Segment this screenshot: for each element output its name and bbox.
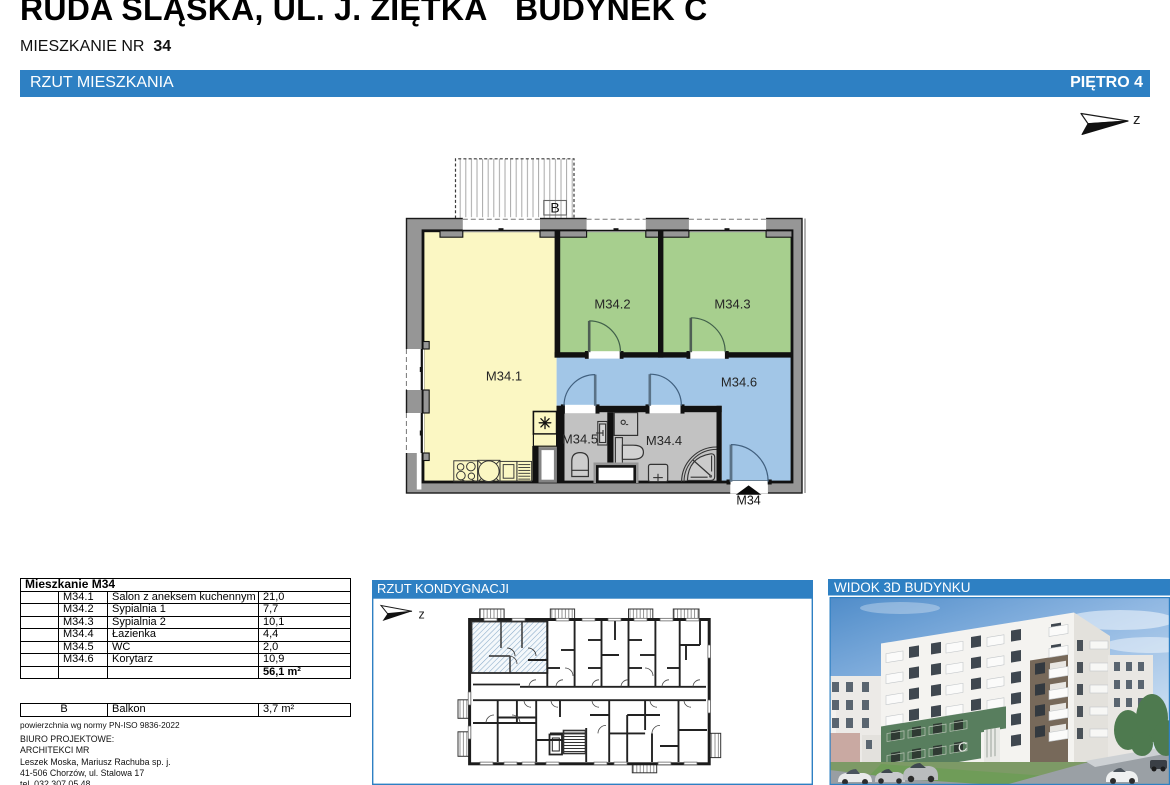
svg-text:B: B [550,200,559,216]
svg-text:M34.5: M34.5 [562,432,598,447]
svg-text:M34.6: M34.6 [721,375,757,390]
svg-text:z: z [419,608,425,622]
svg-text:M34.3: M34.3 [714,297,750,312]
svg-text:C: C [958,739,967,755]
svg-text:M34: M34 [736,494,760,508]
svg-text:WIDOK 3D BUDYNKU: WIDOK 3D BUDYNKU [834,580,971,595]
svg-text:z: z [1133,111,1141,128]
svg-text:RZUT KONDYGNACJI: RZUT KONDYGNACJI [377,581,509,596]
svg-text:M34.1: M34.1 [486,369,522,384]
svg-text:M34.2: M34.2 [594,297,630,312]
svg-text:M34.4: M34.4 [646,433,682,448]
